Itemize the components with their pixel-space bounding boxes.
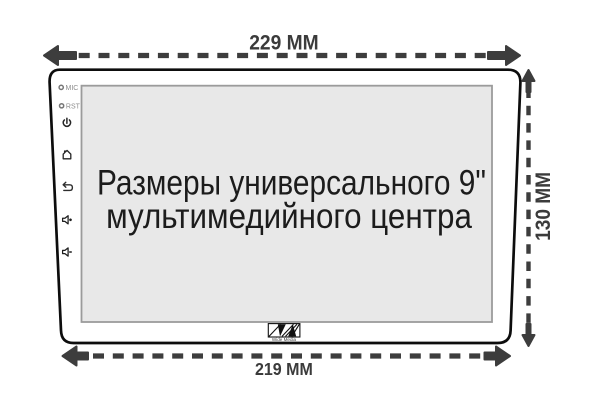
svg-text:229 ММ: 229 ММ [249,32,318,55]
svg-text:Размеры универсального 9": Размеры универсального 9" [97,163,486,202]
svg-text:MIC: MIC [66,85,79,92]
svg-text:Wide Media: Wide Media [272,337,297,342]
svg-text:RST: RST [66,103,81,110]
svg-text:мультимедийного центра: мультимедийного центра [106,197,472,236]
svg-text:219 ММ: 219 ММ [255,360,313,380]
svg-text:130 ММ: 130 ММ [532,172,555,241]
